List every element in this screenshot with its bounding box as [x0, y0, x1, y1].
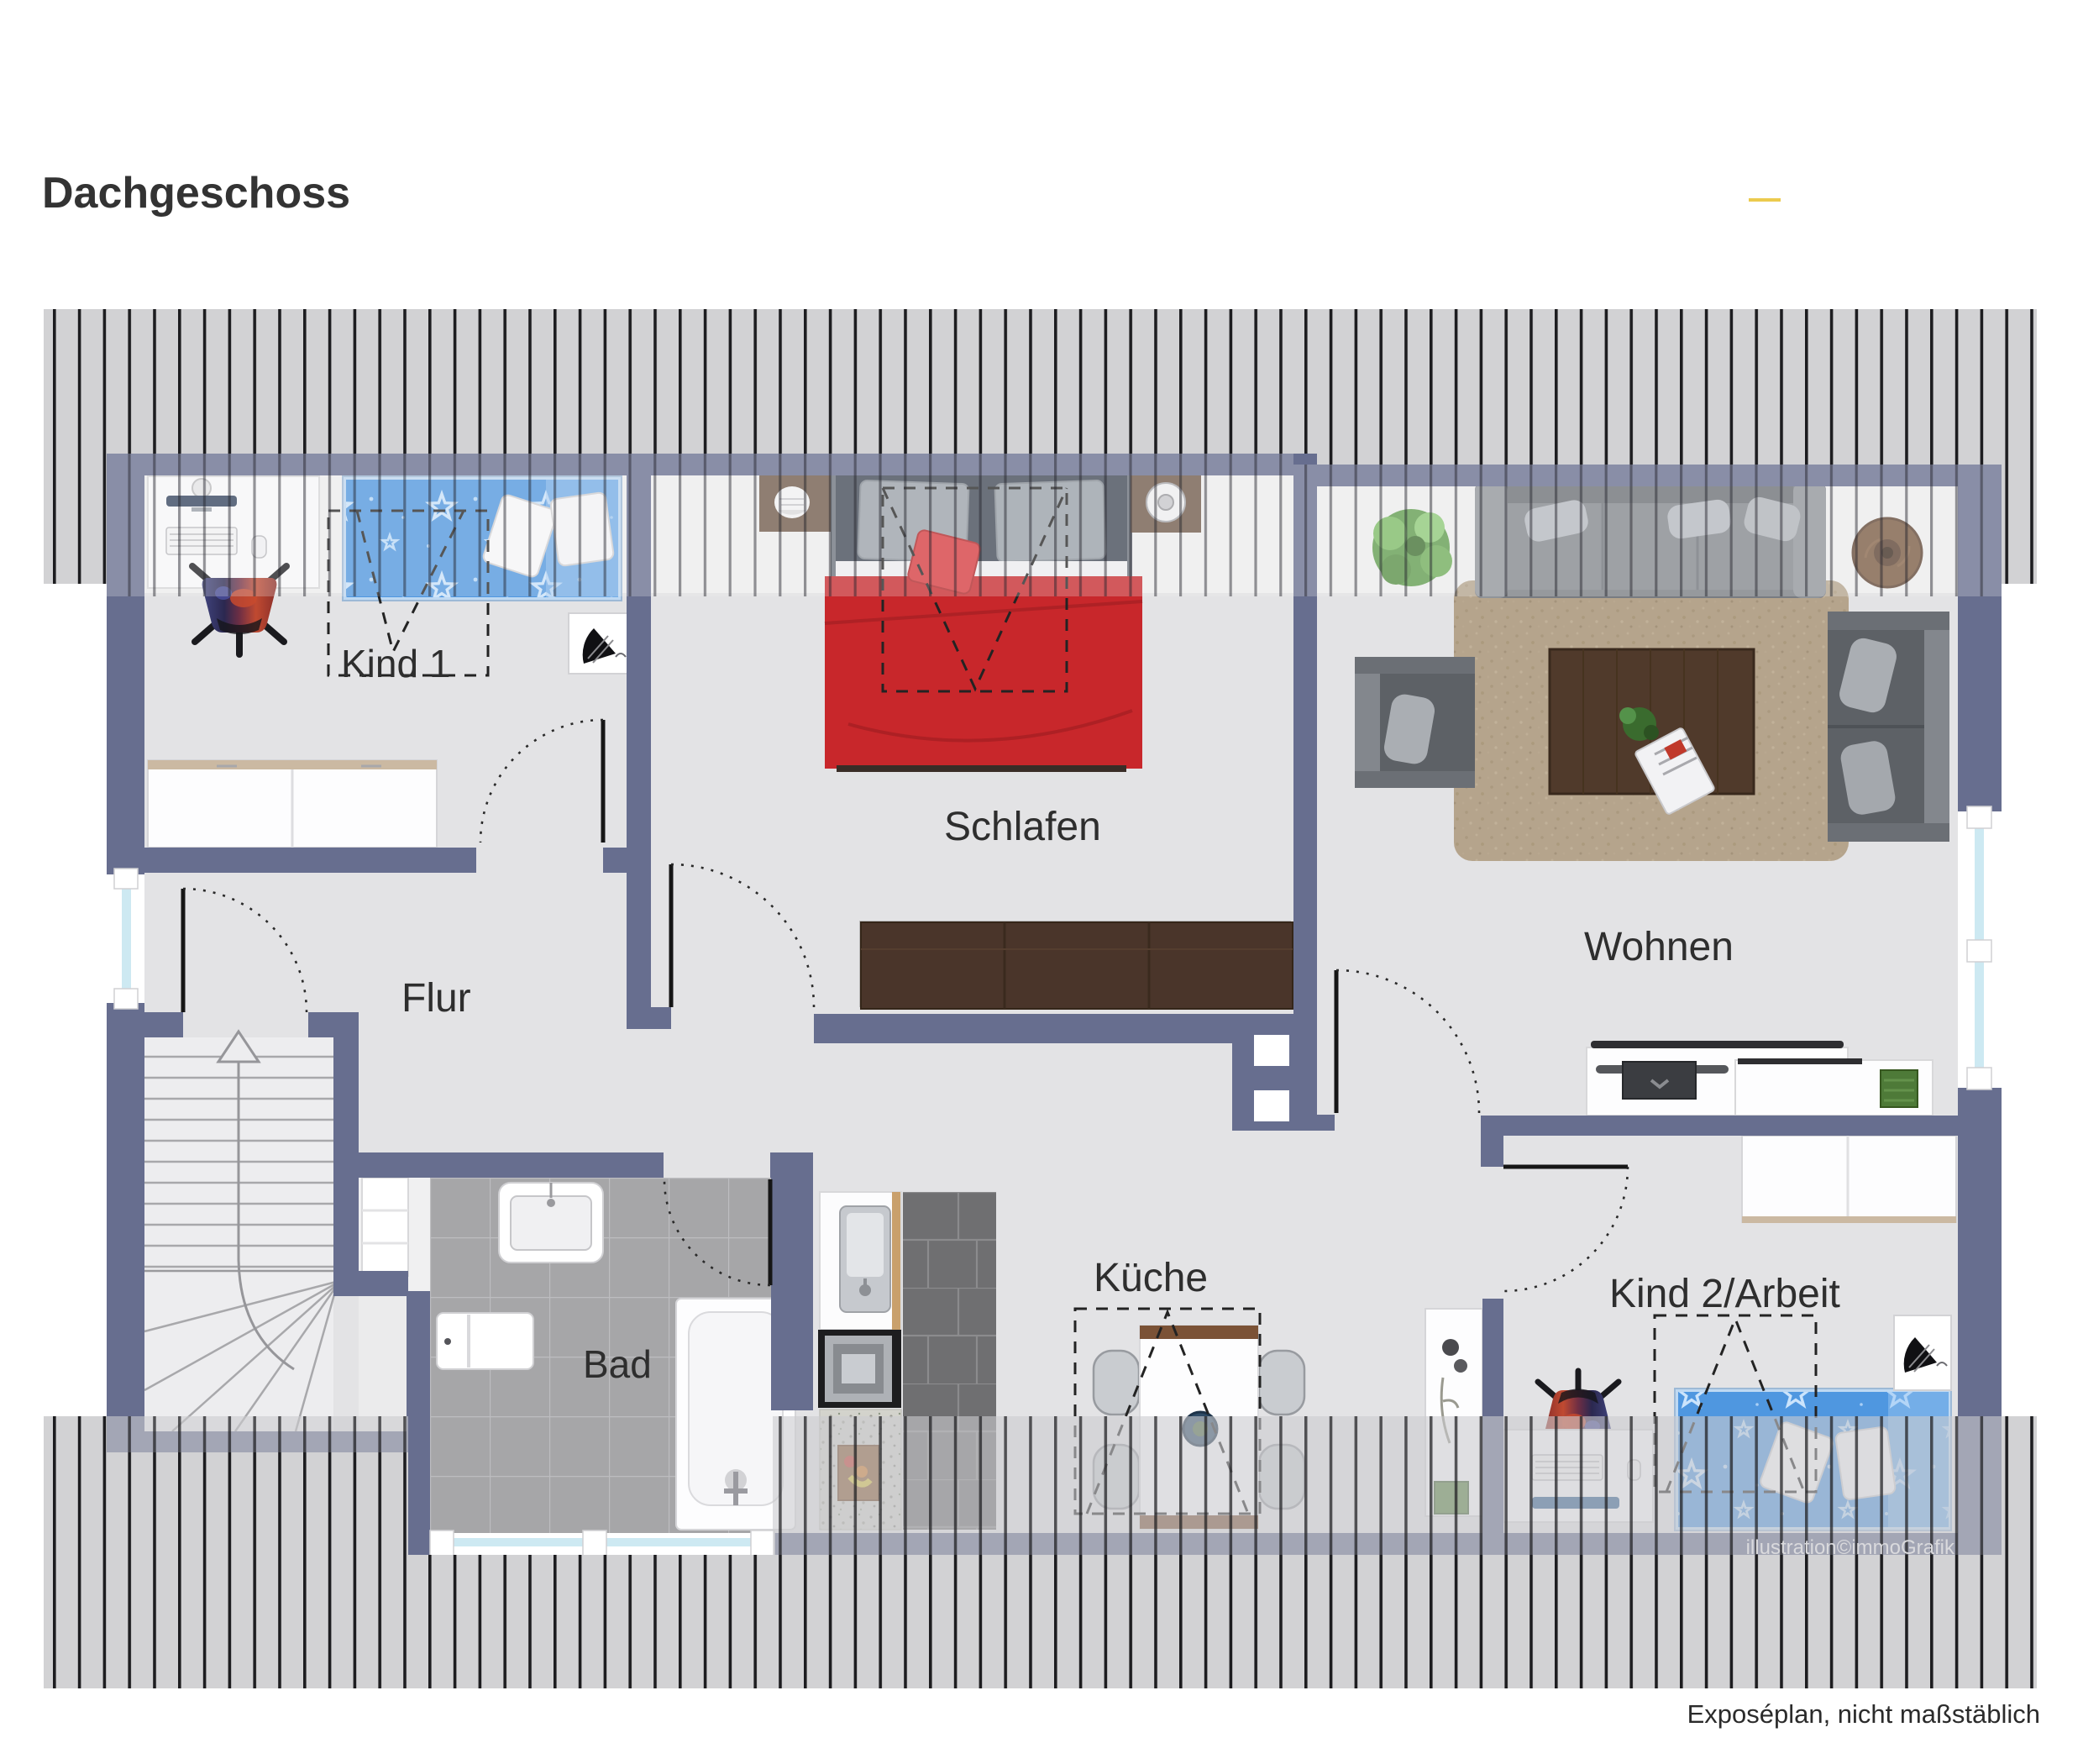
- svg-text:Schlafen: Schlafen: [944, 805, 1101, 849]
- svg-text:Dachgeschoss: Dachgeschoss: [42, 169, 350, 218]
- svg-text:Exposéplan, nicht maßstäblich: Exposéplan, nicht maßstäblich: [1687, 1699, 2040, 1729]
- svg-text:Küche: Küche: [1094, 1256, 1208, 1300]
- svg-text:Kind 1: Kind 1: [341, 642, 450, 685]
- svg-text:Bad: Bad: [583, 1342, 652, 1386]
- svg-text:Flur: Flur: [401, 976, 471, 1021]
- svg-text:Kind 2/Arbeit: Kind 2/Arbeit: [1609, 1272, 1840, 1316]
- svg-text:Wohnen: Wohnen: [1584, 925, 1734, 969]
- svg-text:illustration©immoGrafik: illustration©immoGrafik: [1746, 1536, 1955, 1559]
